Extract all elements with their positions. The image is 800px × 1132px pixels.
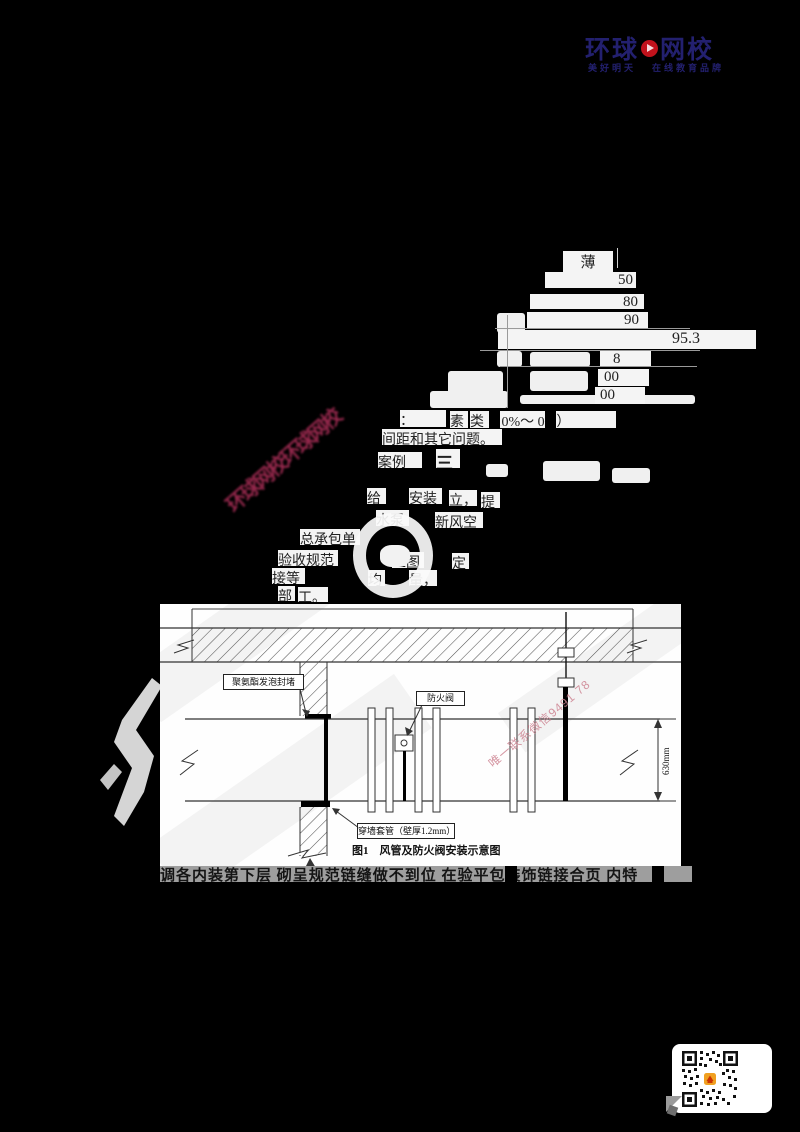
fragment: 给 — [367, 488, 386, 504]
fragment: ： — [400, 410, 446, 427]
fragment: 验收规范 — [278, 550, 338, 566]
fragment: 间距和其它问题。 — [382, 429, 502, 445]
figure-panel: 聚氨酯发泡封堵 防火阀 穿墙套管（壁厚1.2mm） 图1 风管及防火阀安装示意图… — [160, 604, 681, 868]
fragment: 提 — [481, 492, 500, 508]
fire-damper-label: 防火阀 — [416, 691, 465, 706]
qr-code — [682, 1051, 738, 1107]
fragment: 部 — [278, 586, 295, 601]
table-value: 90 — [527, 312, 648, 328]
table-value: 95.3 — [498, 330, 756, 349]
fragment: 三 — [436, 449, 460, 468]
table-rule — [495, 328, 690, 329]
table-value: 50 — [545, 272, 636, 288]
fragment: 工。 — [298, 587, 328, 602]
brand-tagline-right: 在线教育品牌 — [652, 61, 724, 74]
dimension-label: 630mm — [661, 735, 673, 775]
clipped-text: 调各内装第下层 砌呈规范链缝做不到位 在验平包装饰链接合页 内特 — [160, 866, 692, 882]
table-rule — [507, 315, 508, 408]
table-rule — [500, 366, 697, 367]
table-header-char: 薄 — [563, 251, 613, 272]
table-value: 8 — [600, 351, 651, 366]
scanned-document-page: { "logo": { "part1": "环球", "part2": "网校"… — [0, 0, 800, 1132]
qr-bubble-tail-tip — [667, 1105, 679, 1117]
fragment: 安装 — [409, 488, 442, 504]
fragment: 定 — [452, 553, 469, 569]
figure-caption: 图1 风管及防火阀安装示意图 — [352, 842, 501, 858]
fragment: 新风空 — [435, 512, 483, 528]
wall-sleeve-label: 穿墙套管（壁厚1.2mm） — [357, 823, 455, 839]
red-diagonal-watermark: 环球网校环球网校 — [218, 379, 371, 518]
fragment: 接等 — [272, 568, 305, 584]
play-button-icon — [641, 40, 658, 57]
qr-card — [672, 1044, 772, 1113]
brand-tagline: 美好明天 在线教育品牌 — [588, 61, 724, 74]
fragment: 案例 — [378, 452, 422, 468]
table-value: 00 — [598, 369, 649, 386]
fragment: 素 — [450, 411, 468, 428]
foam-seal-label: 聚氨酯发泡封堵 — [223, 674, 304, 690]
brand-tagline-left: 美好明天 — [588, 61, 636, 74]
fragment: 总承包单 — [300, 529, 360, 545]
clipped-text-band: 调各内装第下层 砌呈规范链缝做不到位 在验平包装饰链接合页 内特 — [160, 866, 692, 882]
circular-logo-watermark-core — [380, 545, 410, 567]
fragment: 立， — [449, 490, 477, 506]
table-value: 00 — [595, 387, 645, 404]
table-rule — [480, 350, 700, 351]
table-value: 80 — [530, 294, 644, 309]
